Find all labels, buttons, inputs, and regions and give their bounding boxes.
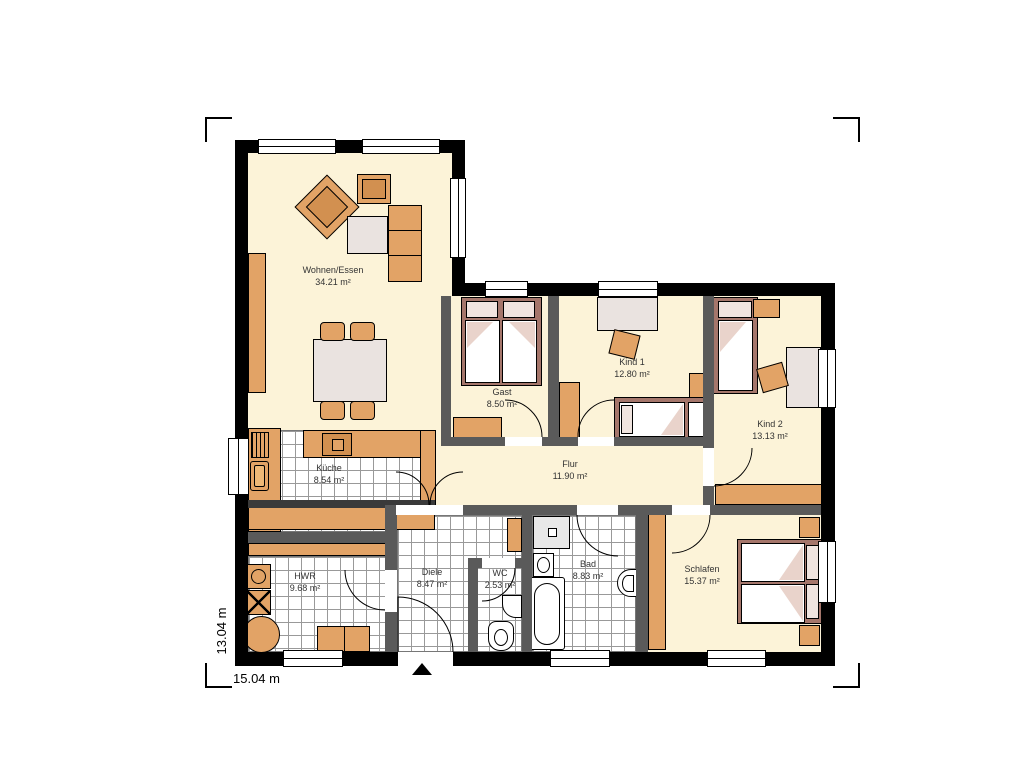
dimension-depth: 13.04 m — [214, 596, 228, 666]
room-label-flur: Flur11.90 m² — [525, 458, 615, 482]
room-label-wc: WC2.53 m² — [470, 567, 530, 591]
room-label-wohnen-essen: Wohnen/Essen34.21 m² — [273, 264, 393, 288]
room-label-kind1: Kind 112.80 m² — [587, 356, 677, 380]
room-label-gast: Gast8.50 m² — [457, 386, 547, 410]
dimension-width: 15.04 m — [233, 671, 280, 686]
room-label-schlafen: Schlafen15.37 m² — [657, 563, 747, 587]
room-label-hwr: HWR9.68 m² — [260, 570, 350, 594]
door-swing-arcs — [0, 0, 1024, 768]
room-label-bad: Bad8.83 m² — [543, 558, 633, 582]
room-label-kueche: Küche8.54 m² — [284, 462, 374, 486]
floor-plan: Wohnen/Essen34.21 m² Küche8.54 m² Gast8.… — [0, 0, 1024, 768]
room-label-kind2: Kind 213.13 m² — [725, 418, 815, 442]
room-label-diele: Diele8.47 m² — [387, 566, 477, 590]
entrance-arrow-icon — [412, 663, 432, 675]
